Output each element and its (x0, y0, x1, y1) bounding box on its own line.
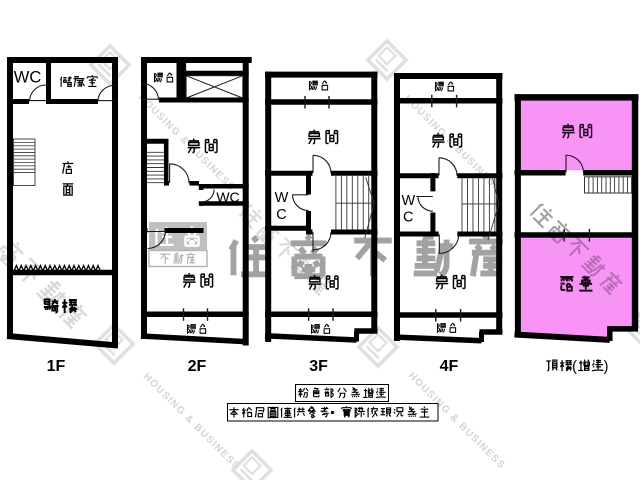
svg-text:C: C (403, 210, 413, 226)
svg-text:W: W (401, 193, 415, 209)
svg-text:3F: 3F (309, 358, 328, 375)
svg-text:(: ( (572, 359, 577, 375)
svg-text:4F: 4F (440, 358, 459, 375)
svg-text:C: C (276, 207, 286, 223)
svg-text:WC: WC (14, 69, 42, 87)
svg-text:1F: 1F (47, 358, 66, 375)
svg-text:W: W (275, 190, 289, 206)
svg-text:2F: 2F (188, 358, 207, 375)
svg-text:): ) (604, 359, 609, 375)
svg-text:WC: WC (216, 189, 239, 205)
